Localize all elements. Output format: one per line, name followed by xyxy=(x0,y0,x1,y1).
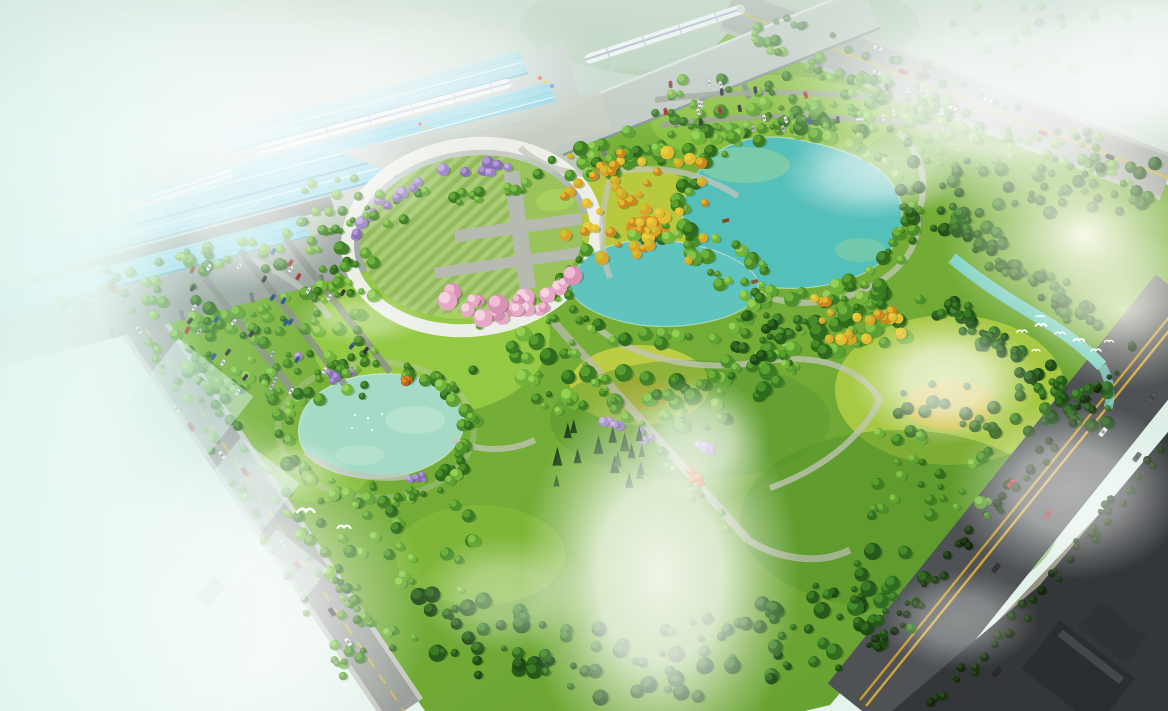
rendering-canvas xyxy=(0,0,1168,711)
aerial-park-rendering xyxy=(0,0,1168,711)
top-haze-tint xyxy=(0,0,1168,711)
